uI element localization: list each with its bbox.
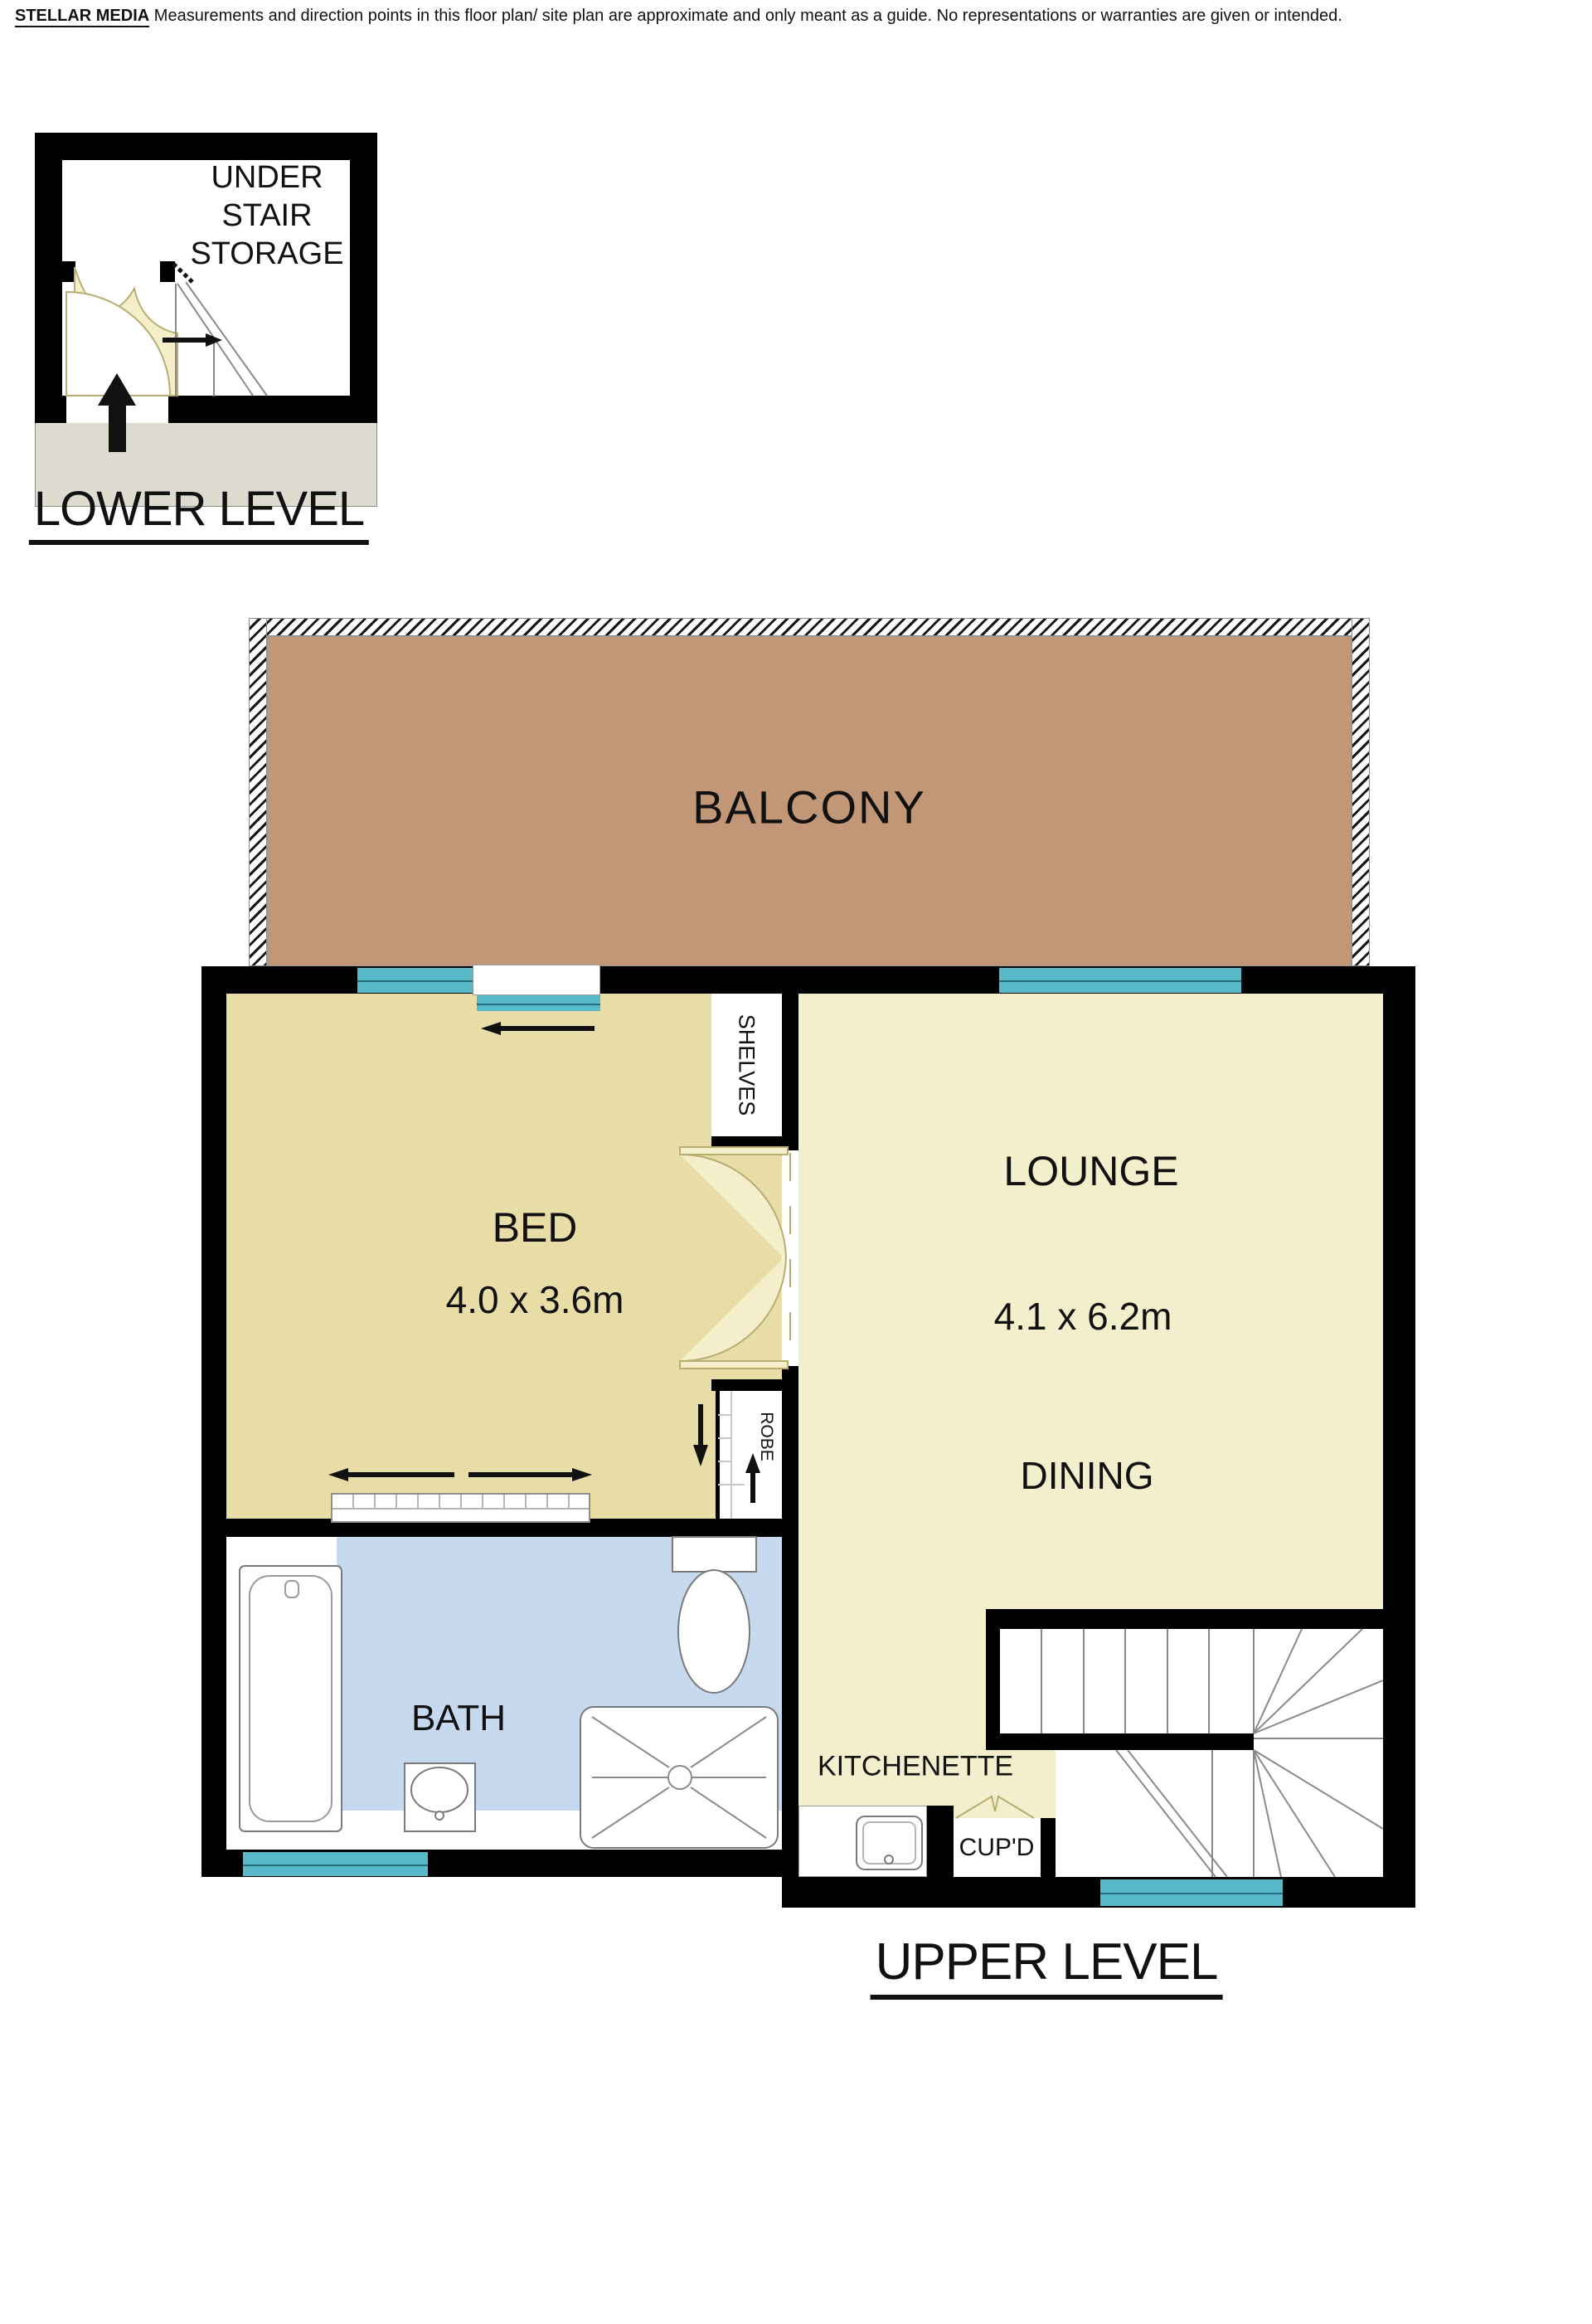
shower-drain [668,1766,692,1789]
ll-stair-dash [173,264,192,282]
robe-up-arrow-icon [745,1453,760,1503]
double-door-panel-bottom [680,1361,788,1369]
bath-slider-arrow-left-icon [328,1468,454,1481]
toilet-bowl [678,1570,750,1693]
stair-winder-top-2 [1254,1629,1362,1733]
robe-down-arrow-icon [693,1404,708,1466]
cupboard-door-icon [956,1796,1034,1818]
double-door-arc-top [680,1155,786,1260]
stair-rail-1 [1116,1750,1216,1877]
basin-drain [435,1811,444,1820]
basin-bowl [411,1767,468,1812]
kitchen-sink-drain [885,1855,893,1864]
stair-winder-bot-2 [1254,1750,1335,1877]
line-art [0,0,1592,2324]
stair-winder-bot-3 [1254,1750,1383,1829]
double-door-panel-top [680,1147,788,1155]
stair-winder-top-1 [1254,1629,1302,1733]
bath-slider-arrow-right-icon [468,1468,592,1481]
double-door-arc-bottom [680,1256,786,1361]
floor-plan-page: STELLAR MEDIA Measurements and direction… [0,0,1592,2324]
toilet-cistern [672,1537,756,1572]
bathtub-faucet [285,1581,298,1597]
balcony-slider-arrow-icon [481,1022,595,1035]
bathtub [240,1566,342,1831]
stair-winder-bot-1 [1254,1750,1281,1877]
stair-winder-top-3 [1254,1680,1383,1733]
